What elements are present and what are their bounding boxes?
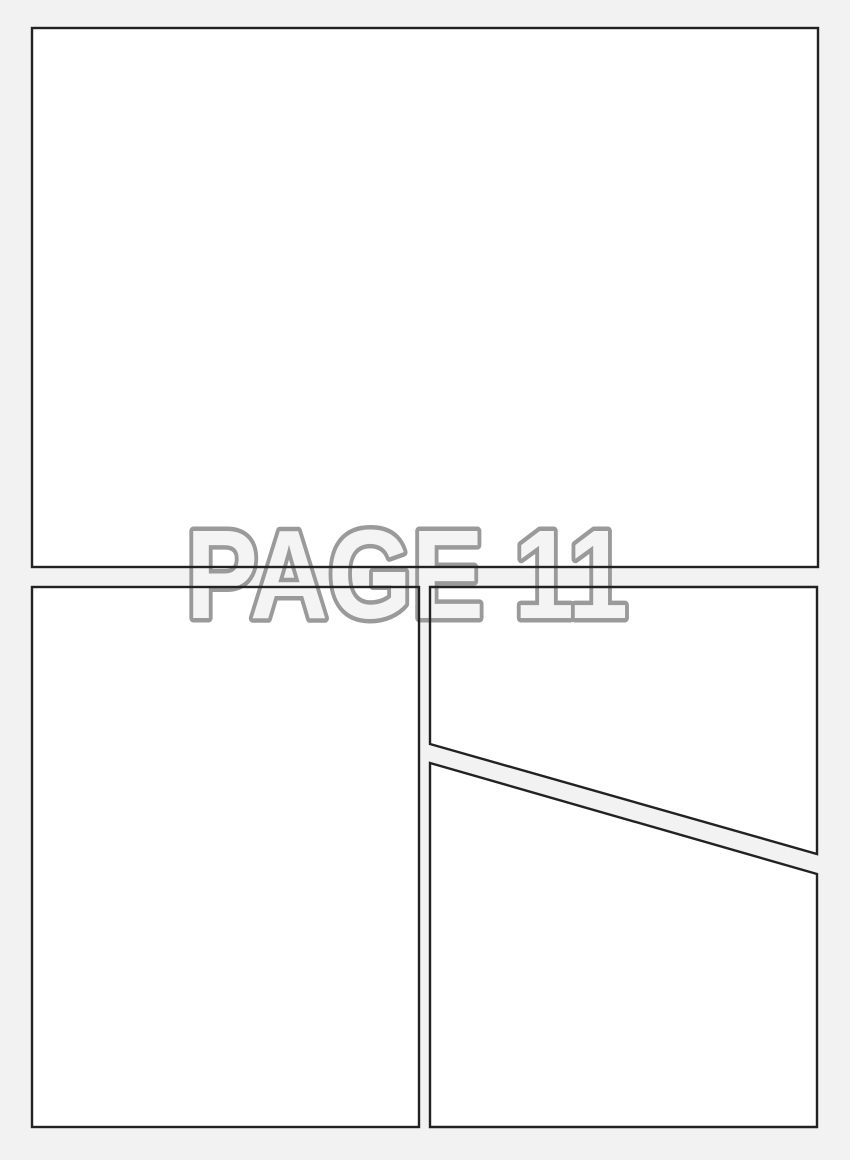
panel-top-fill — [32, 28, 818, 567]
panel-bottom-left-fill — [32, 587, 419, 1127]
page-number-watermark: PAGE 11 — [186, 504, 628, 645]
page-canvas: PAGE 11 — [0, 0, 850, 1160]
comic-page-template: PAGE 11 — [0, 0, 850, 1160]
